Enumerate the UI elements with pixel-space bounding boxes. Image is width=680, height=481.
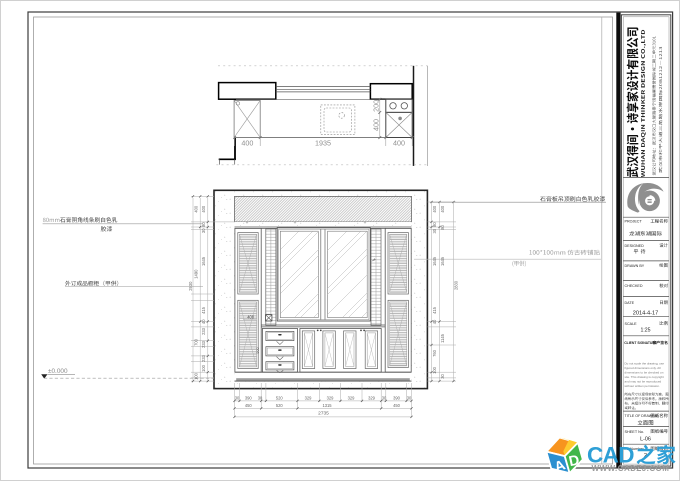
svg-text:329: 329 <box>305 396 313 401</box>
svg-text:80: 80 <box>201 222 206 227</box>
svg-text:520: 520 <box>276 396 284 401</box>
svg-text:1490: 1490 <box>194 269 199 279</box>
svg-text:520: 520 <box>276 403 284 408</box>
svg-text:100: 100 <box>432 366 437 374</box>
svg-text:1:25: 1:25 <box>640 328 650 334</box>
svg-text:1645: 1645 <box>432 256 437 266</box>
svg-text:Do not scale the drawing, use: Do not scale the drawing, use <box>625 362 665 366</box>
svg-text:WWW.CADZJ.COM: WWW.CADZJ.COM <box>592 464 670 473</box>
svg-text:2014-4-17: 2014-4-17 <box>633 311 659 317</box>
svg-text:1645: 1645 <box>440 256 445 266</box>
svg-text:100: 100 <box>194 372 199 380</box>
svg-text:100: 100 <box>201 364 206 372</box>
svg-text:40: 40 <box>201 319 206 324</box>
svg-text:SHEET No.: SHEET No. <box>625 430 645 434</box>
svg-text:PROJECT: PROJECT <box>625 220 643 224</box>
svg-text:390: 390 <box>393 396 401 401</box>
svg-text:CHECKED: CHECKED <box>625 284 643 288</box>
svg-text:200: 200 <box>372 100 381 112</box>
svg-text:30: 30 <box>432 228 437 233</box>
svg-text:900: 900 <box>256 347 260 353</box>
svg-text:329: 329 <box>348 396 356 401</box>
svg-text:450: 450 <box>245 403 253 408</box>
svg-text:DATE: DATE <box>625 301 635 305</box>
svg-text:1645: 1645 <box>201 256 206 266</box>
svg-text:400: 400 <box>241 138 253 147</box>
svg-text:DRAWN BY: DRAWN BY <box>625 264 645 268</box>
svg-text:DESIGNED: DESIGNED <box>625 244 645 248</box>
svg-text:760: 760 <box>432 349 437 357</box>
svg-text:±0.000: ±0.000 <box>48 368 68 375</box>
svg-text:30: 30 <box>440 374 445 379</box>
svg-text:site. This drawing is copyrigh: site. This drawing is copyright <box>625 375 664 379</box>
svg-text:400: 400 <box>194 205 199 213</box>
svg-text:400: 400 <box>201 205 206 213</box>
svg-text:400: 400 <box>440 205 445 213</box>
svg-text:80: 80 <box>432 222 437 227</box>
svg-text:400: 400 <box>432 205 437 213</box>
svg-text:30: 30 <box>382 396 387 401</box>
svg-text:1935: 1935 <box>315 138 331 147</box>
svg-text:TITLE OF DRAWING: TITLE OF DRAWING <box>625 414 659 418</box>
svg-text:400: 400 <box>372 119 381 131</box>
svg-text:329: 329 <box>327 396 335 401</box>
svg-text:450: 450 <box>393 403 401 408</box>
svg-text:415: 415 <box>201 306 206 314</box>
svg-text:400: 400 <box>393 138 405 147</box>
svg-text:700: 700 <box>194 338 199 346</box>
svg-text:figured dimensions only. All: figured dimensions only. All <box>625 366 661 370</box>
svg-text:1315: 1315 <box>322 403 332 408</box>
svg-text:30: 30 <box>258 396 263 401</box>
svg-text:30: 30 <box>201 228 206 233</box>
svg-text:390: 390 <box>245 396 253 401</box>
svg-text:329: 329 <box>368 396 376 401</box>
svg-text:400: 400 <box>247 314 255 319</box>
svg-text:30: 30 <box>407 396 412 401</box>
svg-text:without written permission.: without written permission. <box>625 384 661 388</box>
svg-text:233: 233 <box>201 327 206 335</box>
svg-text:233: 233 <box>201 340 206 348</box>
svg-text:L-06: L-06 <box>640 437 651 443</box>
svg-text:dimensions to be checked on: dimensions to be checked on <box>625 371 664 375</box>
svg-text:SCALE: SCALE <box>625 322 638 326</box>
svg-text:415: 415 <box>432 306 437 314</box>
svg-text:and may not be reproduced: and may not be reproduced <box>625 380 662 384</box>
svg-text:40: 40 <box>432 319 437 324</box>
svg-text:233: 233 <box>201 354 206 362</box>
svg-text:80: 80 <box>440 225 445 230</box>
svg-text:2830: 2830 <box>454 280 459 290</box>
svg-text:1145: 1145 <box>440 333 445 343</box>
svg-text:2930: 2930 <box>188 281 193 291</box>
svg-text:2735: 2735 <box>318 410 329 416</box>
svg-text:30: 30 <box>235 396 240 401</box>
